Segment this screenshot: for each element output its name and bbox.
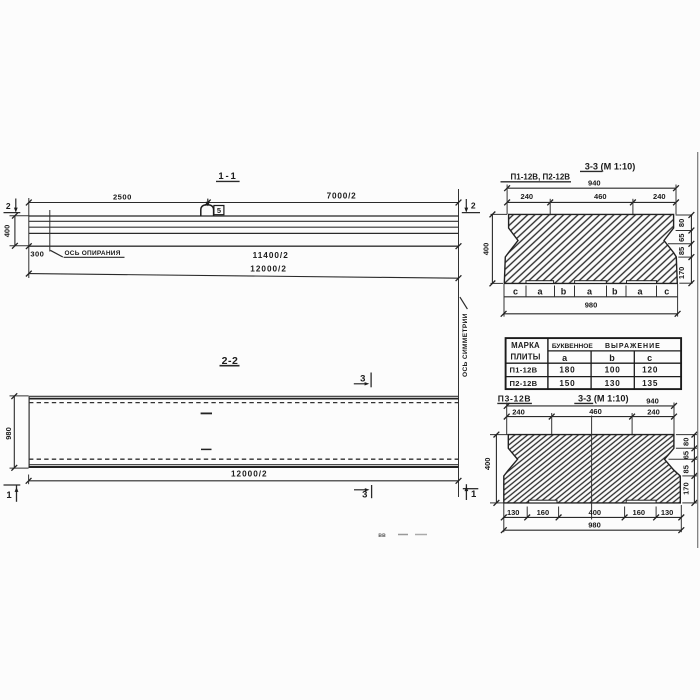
svg-text:980: 980 — [588, 521, 601, 530]
svg-text:85: 85 — [677, 247, 686, 255]
svg-text:240: 240 — [647, 408, 660, 417]
svg-text:1: 1 — [6, 490, 12, 501]
svg-text:П3-12В: П3-12В — [498, 393, 531, 403]
svg-text:3-3 (М 1:10): 3-3 (М 1:10) — [578, 393, 629, 403]
svg-text:вв: вв — [378, 533, 386, 539]
svg-text:2: 2 — [471, 201, 476, 211]
svg-text:300: 300 — [30, 249, 44, 258]
svg-text:12000/2: 12000/2 — [231, 469, 268, 478]
svg-text:160: 160 — [537, 508, 550, 517]
svg-text:c: c — [647, 353, 652, 363]
svg-text:130: 130 — [661, 508, 674, 517]
svg-text:460: 460 — [589, 407, 602, 416]
svg-text:170: 170 — [677, 267, 686, 280]
svg-text:400: 400 — [2, 225, 11, 238]
svg-text:12000/2: 12000/2 — [250, 265, 287, 274]
svg-text:БУКВЕННОЕ: БУКВЕННОЕ — [552, 343, 594, 350]
svg-text:11400/2: 11400/2 — [253, 251, 289, 260]
svg-text:2500: 2500 — [113, 192, 132, 201]
svg-text:b: b — [561, 287, 567, 297]
svg-text:1: 1 — [471, 489, 477, 500]
svg-text:ОСЬ ОПИРАНИЯ: ОСЬ ОПИРАНИЯ — [65, 250, 121, 257]
svg-text:П1-12В: П1-12В — [510, 366, 538, 375]
svg-text:5: 5 — [217, 206, 221, 215]
svg-text:170: 170 — [682, 482, 691, 495]
svg-text:3-3 (М 1:10): 3-3 (М 1:10) — [585, 161, 636, 171]
svg-text:240: 240 — [521, 192, 534, 201]
svg-text:ОСЬ СИММЕТРИИ: ОСЬ СИММЕТРИИ — [462, 313, 469, 377]
svg-text:240: 240 — [653, 192, 666, 201]
svg-text:460: 460 — [594, 192, 607, 201]
svg-text:П1-12В, П2-12В: П1-12В, П2-12В — [511, 172, 571, 181]
svg-text:П2-12В: П2-12В — [510, 379, 538, 388]
svg-text:80: 80 — [682, 438, 691, 446]
svg-text:c: c — [664, 287, 669, 297]
svg-text:65: 65 — [682, 451, 691, 459]
svg-text:85: 85 — [682, 465, 691, 473]
svg-text:1-1: 1-1 — [218, 171, 237, 182]
svg-text:150: 150 — [559, 379, 575, 388]
svg-text:180: 180 — [559, 366, 575, 375]
svg-text:240: 240 — [512, 407, 525, 416]
svg-text:980: 980 — [585, 301, 598, 310]
svg-text:130: 130 — [507, 508, 520, 517]
svg-text:135: 135 — [642, 379, 658, 388]
svg-text:c: c — [513, 287, 518, 297]
svg-text:100: 100 — [605, 366, 621, 375]
svg-text:160: 160 — [633, 508, 646, 517]
svg-text:2: 2 — [6, 201, 11, 211]
svg-text:940: 940 — [588, 178, 601, 187]
svg-text:980: 980 — [4, 427, 13, 440]
svg-text:120: 120 — [642, 366, 658, 375]
svg-text:b: b — [612, 287, 618, 297]
svg-text:b: b — [609, 353, 615, 363]
svg-text:ПЛИТЫ: ПЛИТЫ — [510, 353, 540, 362]
svg-text:400: 400 — [483, 458, 492, 471]
svg-text:ВЫРАЖЕНИЕ: ВЫРАЖЕНИЕ — [605, 343, 661, 350]
svg-text:65: 65 — [677, 234, 686, 242]
svg-text:400: 400 — [589, 508, 602, 517]
svg-text:940: 940 — [646, 397, 659, 406]
svg-text:400: 400 — [481, 243, 490, 256]
svg-text:МАРКА: МАРКА — [511, 341, 540, 350]
svg-text:80: 80 — [677, 219, 686, 227]
svg-text:7000/2: 7000/2 — [327, 192, 357, 201]
svg-text:130: 130 — [605, 379, 621, 388]
